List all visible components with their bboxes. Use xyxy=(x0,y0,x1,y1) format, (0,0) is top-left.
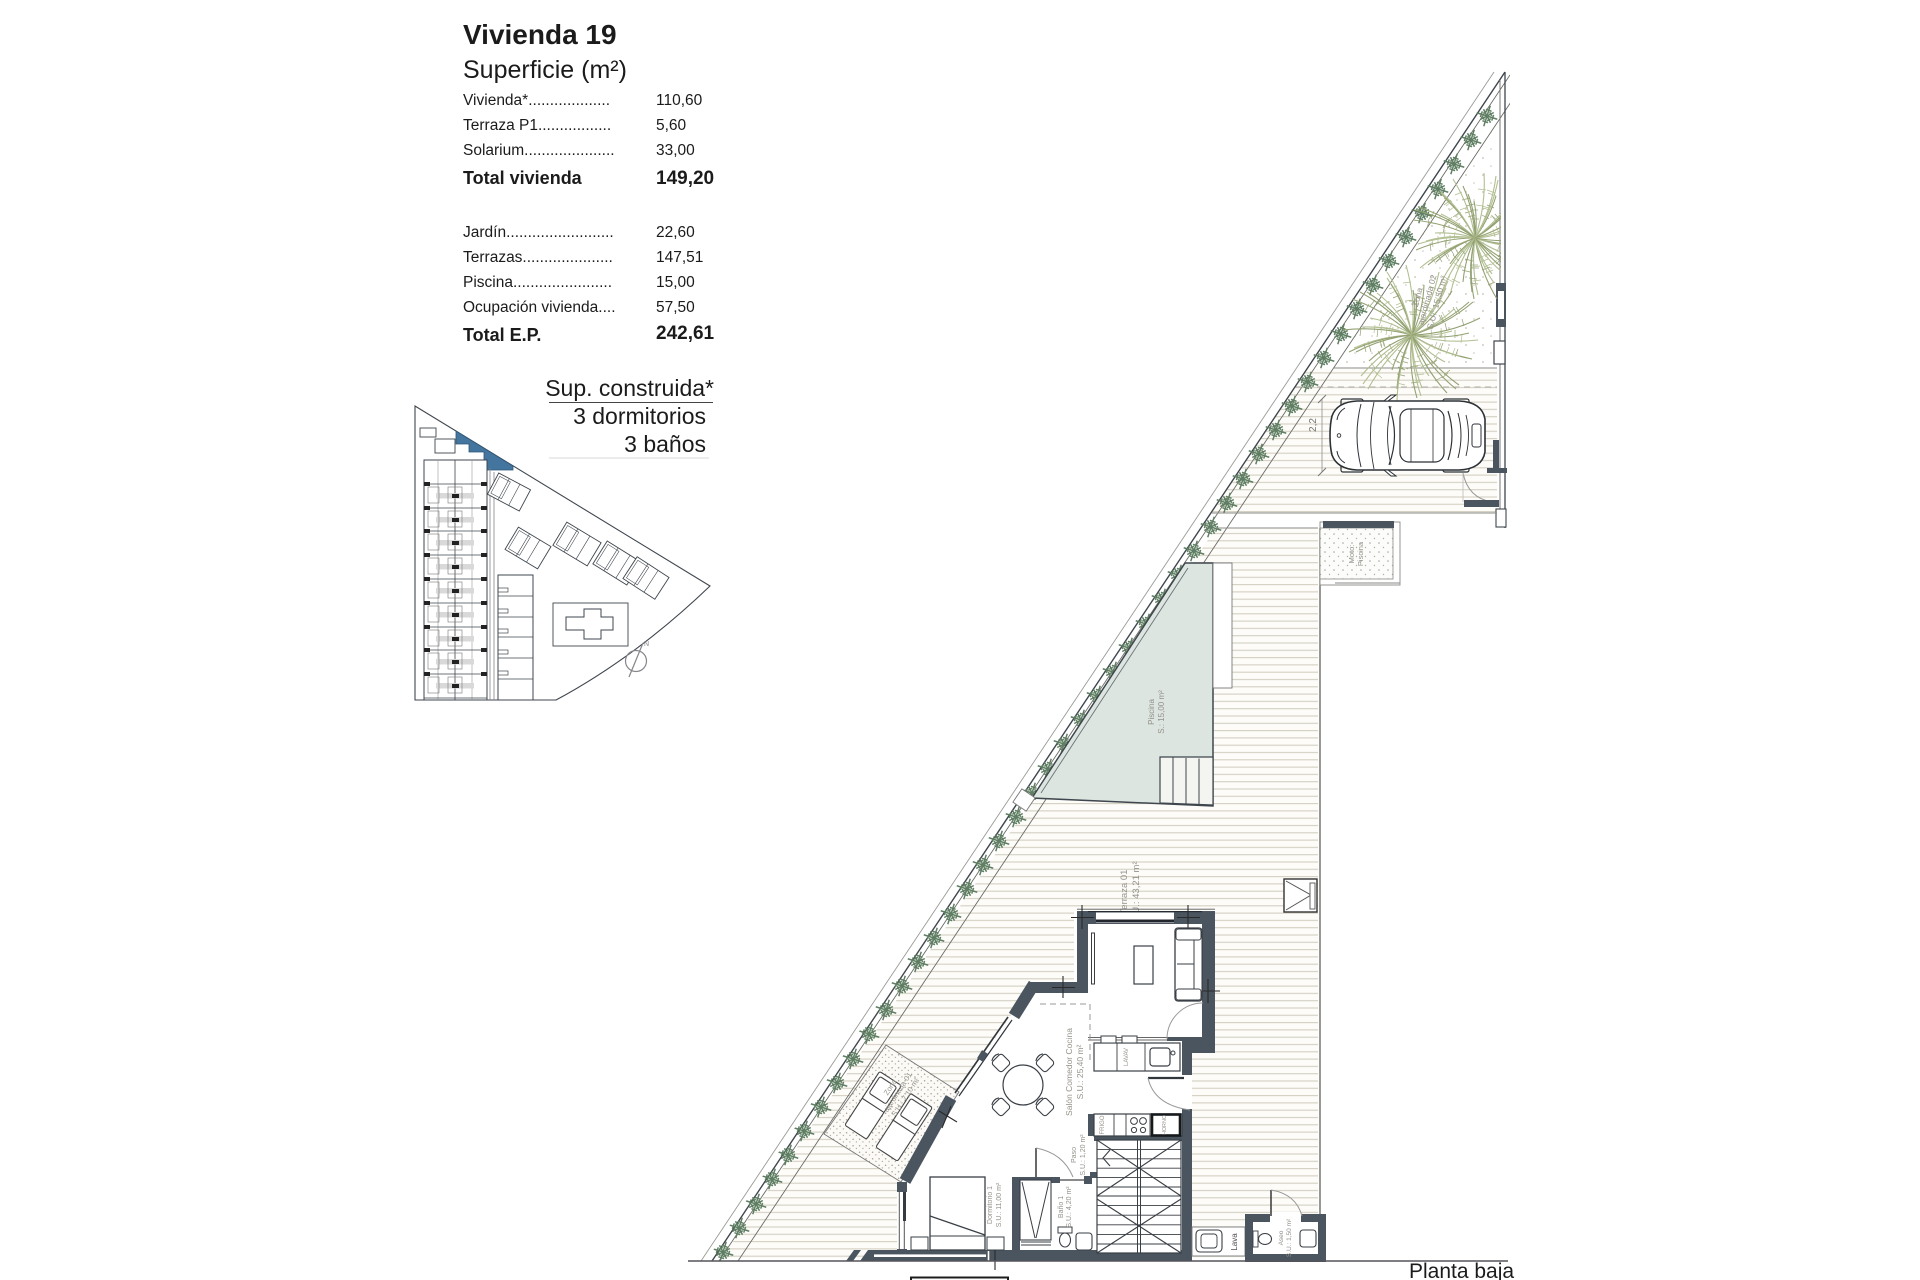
svg-text:Paso: Paso xyxy=(1071,1147,1078,1163)
svg-text:33,00: 33,00 xyxy=(656,142,695,159)
svg-text:N: N xyxy=(644,641,649,648)
svg-text:Terraza 01: Terraza 01 xyxy=(1119,870,1130,915)
svg-text:Solarium.....................: Solarium..................... xyxy=(463,142,615,159)
svg-text:S.: 15,00 m²: S.: 15,00 m² xyxy=(1157,690,1166,734)
svg-text:Total E.P.: Total E.P. xyxy=(463,325,541,345)
svg-text:Vivienda 19: Vivienda 19 xyxy=(463,19,617,50)
svg-text:Piscina: Piscina xyxy=(1147,699,1156,725)
svg-text:Terrazas.....................: Terrazas..................... xyxy=(463,249,613,266)
svg-text:HORNO: HORNO xyxy=(1162,1115,1168,1135)
svg-text:Baño 1: Baño 1 xyxy=(1058,1196,1065,1218)
svg-text:Ocupación vivienda....: Ocupación vivienda.... xyxy=(463,299,616,316)
svg-text:Sup. construida*: Sup. construida* xyxy=(545,375,714,401)
svg-text:5,60: 5,60 xyxy=(656,117,687,134)
svg-text:Salón Comedor Cocina: Salón Comedor Cocina xyxy=(1064,1028,1074,1116)
svg-text:Moto:: Moto: xyxy=(1347,545,1356,564)
svg-text:S.U.: 25,40 m²: S.U.: 25,40 m² xyxy=(1075,1044,1085,1099)
svg-text:15,00: 15,00 xyxy=(656,274,695,291)
svg-text:Jardín........................: Jardín......................... xyxy=(463,224,614,241)
svg-text:Terraza P1.................: Terraza P1................. xyxy=(463,117,611,134)
svg-text:2,2: 2,2 xyxy=(1308,418,1319,432)
svg-text:3 dormitorios: 3 dormitorios xyxy=(573,403,706,429)
svg-text:Total vivienda: Total vivienda xyxy=(463,168,583,188)
svg-text:FRIGO: FRIGO xyxy=(1100,1115,1106,1134)
svg-text:Planta baja: Planta baja xyxy=(1409,1260,1514,1280)
svg-text:S.U.: 4,20 m²: S.U.: 4,20 m² xyxy=(1066,1186,1073,1228)
svg-text:S.U.: 1,20 m²: S.U.: 1,20 m² xyxy=(1080,1134,1087,1176)
svg-text:3 baños: 3 baños xyxy=(624,431,706,457)
svg-text:Piscina: Piscina xyxy=(1356,541,1365,566)
svg-text:Lava: Lava xyxy=(1230,1233,1239,1251)
svg-text:Piscina.......................: Piscina....................... xyxy=(463,274,612,291)
svg-text:149,20: 149,20 xyxy=(656,168,714,189)
svg-text:147,51: 147,51 xyxy=(656,249,703,266)
svg-text:Aseo: Aseo xyxy=(1278,1230,1285,1245)
svg-text:Dormitorio 1: Dormitorio 1 xyxy=(987,1186,994,1224)
svg-text:110,60: 110,60 xyxy=(656,92,703,109)
svg-text:57,50: 57,50 xyxy=(656,299,695,316)
svg-text:22,60: 22,60 xyxy=(656,224,695,241)
svg-text:242,61: 242,61 xyxy=(656,323,715,344)
svg-text:LAVAV: LAVAV xyxy=(1124,1048,1130,1066)
svg-text:S.U.: 11,00 m²: S.U.: 11,00 m² xyxy=(996,1182,1003,1227)
svg-text:S.U.: 1,50 m²: S.U.: 1,50 m² xyxy=(1286,1218,1293,1257)
svg-text:Vivienda*...................: Vivienda*................... xyxy=(463,92,610,109)
svg-text:Superficie (m²): Superficie (m²) xyxy=(463,56,627,84)
